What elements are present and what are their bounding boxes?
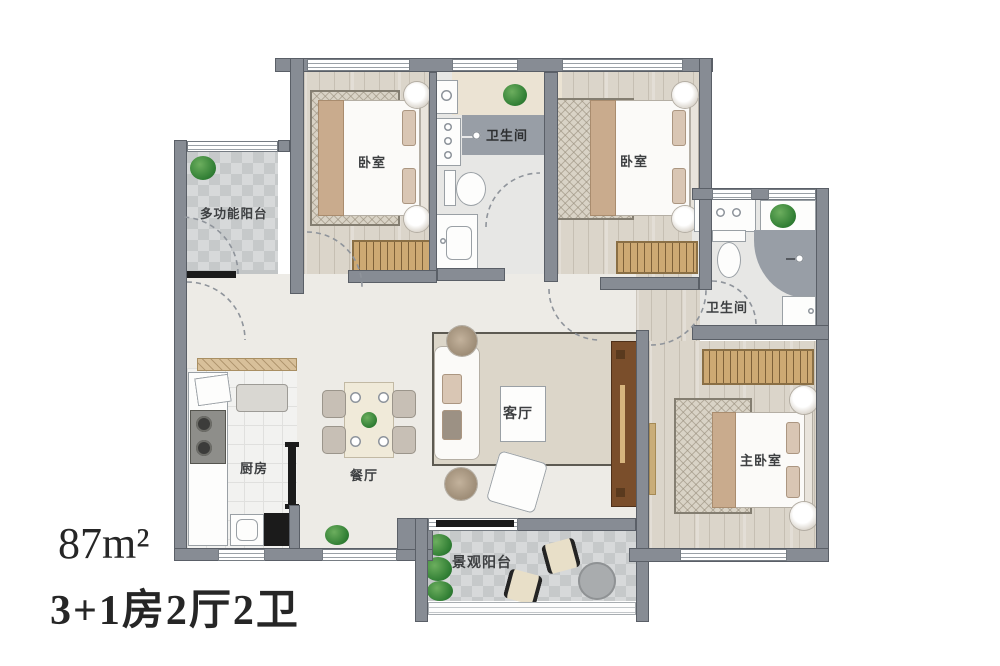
layout-config-label: 3+1房2厅2卫 bbox=[50, 576, 300, 637]
floorplan-image: 卧室 卫生间 卧室 卫生间 主卧室 bbox=[0, 0, 1000, 666]
area-label: 87m² bbox=[58, 518, 149, 569]
door-swing-arc bbox=[0, 0, 1000, 666]
